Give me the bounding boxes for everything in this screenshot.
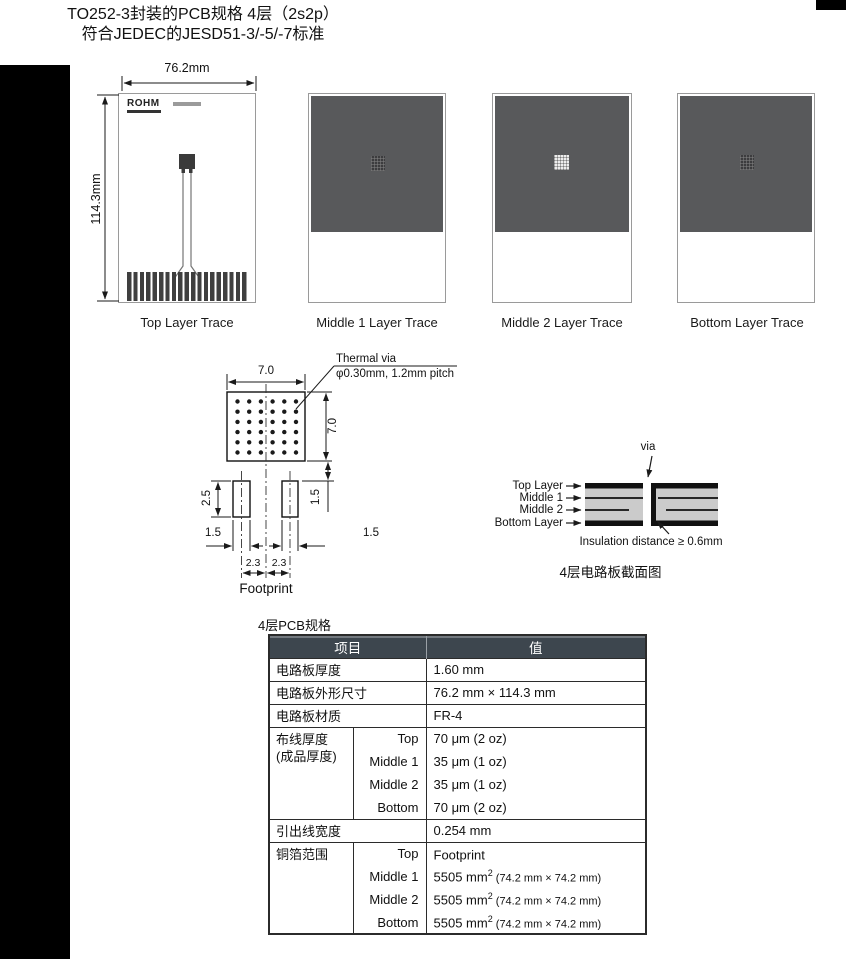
table-row: 电路板材质 FR-4 xyxy=(269,704,646,727)
header-value: 值 xyxy=(426,635,646,658)
table-row: 铜箔范围 Top Footprint xyxy=(269,842,646,865)
spec-table: 项目 值 电路板厚度 1.60 mm 电路板外形尺寸 76.2 mm × 114… xyxy=(268,634,647,935)
table-row: 电路板外形尺寸 76.2 mm × 114.3 mm xyxy=(269,681,646,704)
spec-value-cell: 5505 mm2 (74.2 mm × 74.2 mm) xyxy=(426,865,646,888)
layer-cell: Middle 2 xyxy=(353,888,426,911)
layer-cell: Middle 1 xyxy=(353,865,426,888)
spec-value-cell: 35 μm (1 oz) xyxy=(426,773,646,796)
layer-cell: Top xyxy=(353,727,426,750)
dim-pad-width: 7.0 xyxy=(234,365,298,378)
layer-cell: Bottom xyxy=(353,796,426,819)
cross-section-caption: 4层电路板截面图 xyxy=(523,566,698,579)
dim-lead-height: 2.5 xyxy=(201,483,215,513)
via-label: via xyxy=(628,441,668,454)
spec-item-cell: 电路板外形尺寸 xyxy=(269,681,426,704)
thermal-via-spec: φ0.30mm, 1.2mm pitch xyxy=(336,368,454,381)
dim-pitch-right: 2.3 xyxy=(266,557,292,570)
header-item: 项目 xyxy=(269,635,426,658)
layer-cell: Top xyxy=(353,842,426,865)
spec-value-cell: 0.254 mm xyxy=(426,819,646,842)
spec-table-header-row: 项目 值 xyxy=(269,635,646,658)
table-row: 电路板厚度 1.60 mm xyxy=(269,658,646,681)
spec-value-cell: 70 μm (2 oz) xyxy=(426,727,646,750)
spec-table-caption: 4层PCB规格 xyxy=(258,615,331,634)
datasheet-page: TO252-3封装的PCB规格 4层（2s2p） 符合JEDEC的JESD51-… xyxy=(0,0,846,961)
spec-item-cell: 电路板厚度 xyxy=(269,658,426,681)
spec-value-cell: 35 μm (1 oz) xyxy=(426,750,646,773)
spec-value-cell: 5505 mm2 (74.2 mm × 74.2 mm) xyxy=(426,911,646,934)
spec-item-cell: 电路板材质 xyxy=(269,704,426,727)
layer-label-middle2: Middle 2 xyxy=(480,504,563,517)
layer-cell: Bottom xyxy=(353,911,426,934)
spec-value-cell: FR-4 xyxy=(426,704,646,727)
spec-value-cell: Footprint xyxy=(426,842,646,865)
table-row: 布线厚度 (成品厚度) Top 70 μm (2 oz) xyxy=(269,727,646,750)
spec-group-copper-area: 铜箔范围 xyxy=(269,842,353,934)
spec-value-cell: 1.60 mm xyxy=(426,658,646,681)
spec-value-cell: 70 μm (2 oz) xyxy=(426,796,646,819)
thermal-via-label: Thermal via xyxy=(336,353,396,366)
spec-item-cell: 引出线宽度 xyxy=(269,819,426,842)
dim-pitch-left: 2.3 xyxy=(240,557,266,570)
dim-pad-height: 7.0 xyxy=(327,411,341,441)
dim-lead-width-right: 1.5 xyxy=(356,527,386,540)
dim-lead-width-left: 1.5 xyxy=(198,527,228,540)
table-row: 引出线宽度 0.254 mm xyxy=(269,819,646,842)
layer-cell: Middle 1 xyxy=(353,750,426,773)
dim-clearance: 1.5 xyxy=(310,482,324,512)
layer-cell: Middle 2 xyxy=(353,773,426,796)
spec-group-trace-thickness: 布线厚度 (成品厚度) xyxy=(269,727,353,819)
spec-value-cell: 76.2 mm × 114.3 mm xyxy=(426,681,646,704)
group-label-line1: 铜箔范围 xyxy=(276,846,347,863)
insulation-distance-note: Insulation distance ≥ 0.6mm xyxy=(562,536,740,549)
group-label-line1: 布线厚度 xyxy=(276,731,347,748)
layer-label-bottom: Bottom Layer xyxy=(480,517,563,530)
footprint-caption: Footprint xyxy=(216,582,316,595)
group-label-line2: (成品厚度) xyxy=(276,748,347,765)
spec-value-cell: 5505 mm2 (74.2 mm × 74.2 mm) xyxy=(426,888,646,911)
